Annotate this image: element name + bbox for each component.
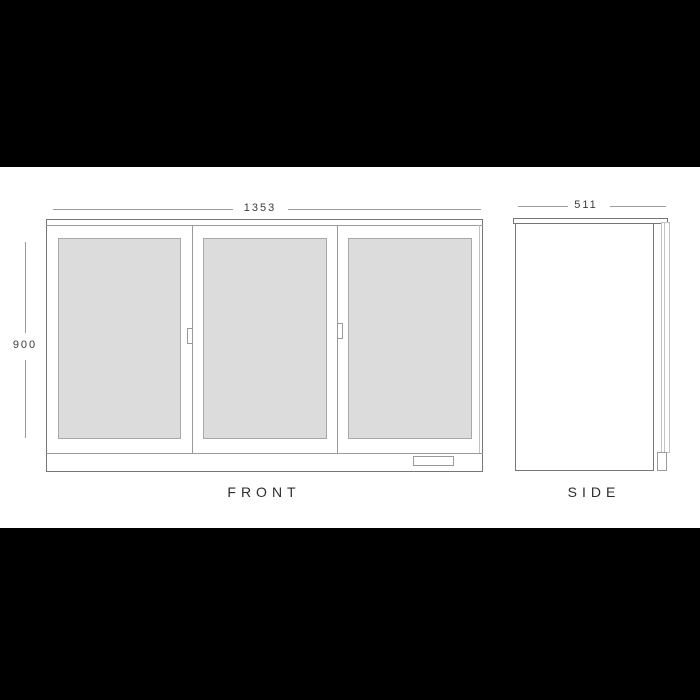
front-height-dimension-line-top [25,242,26,333]
front-label: FRONT [164,484,364,500]
front-height-dimension-line-bottom [25,360,26,438]
front-top-panel-line [46,225,483,226]
door-handle-1 [187,328,193,344]
glass-panel-3 [348,238,472,439]
door-handle-2 [337,323,343,339]
side-body-outline [515,223,654,471]
side-label: SIDE [494,484,694,500]
technical-drawing: 1353 900 FRONT 511 [0,0,700,700]
side-door-slab-inner-line [664,223,665,452]
glass-panel-1 [58,238,181,439]
side-foot [657,452,667,471]
side-door-slab [661,222,670,453]
letterbox-top [0,0,700,167]
front-right-stile-line [479,225,480,453]
vent-grille [413,456,454,466]
glass-panel-2 [203,238,327,439]
front-plinth-line [46,453,483,454]
side-depth-dimension-value: 511 [560,199,612,212]
front-width-dimension-value: 1353 [228,202,292,215]
side-depth-dimension-line-right [610,206,666,207]
letterbox-bottom [0,528,700,700]
front-width-dimension-line-left [53,209,233,210]
front-height-dimension-value: 900 [4,339,46,352]
front-width-dimension-line-right [288,209,481,210]
front-door-divider-2 [337,225,338,453]
